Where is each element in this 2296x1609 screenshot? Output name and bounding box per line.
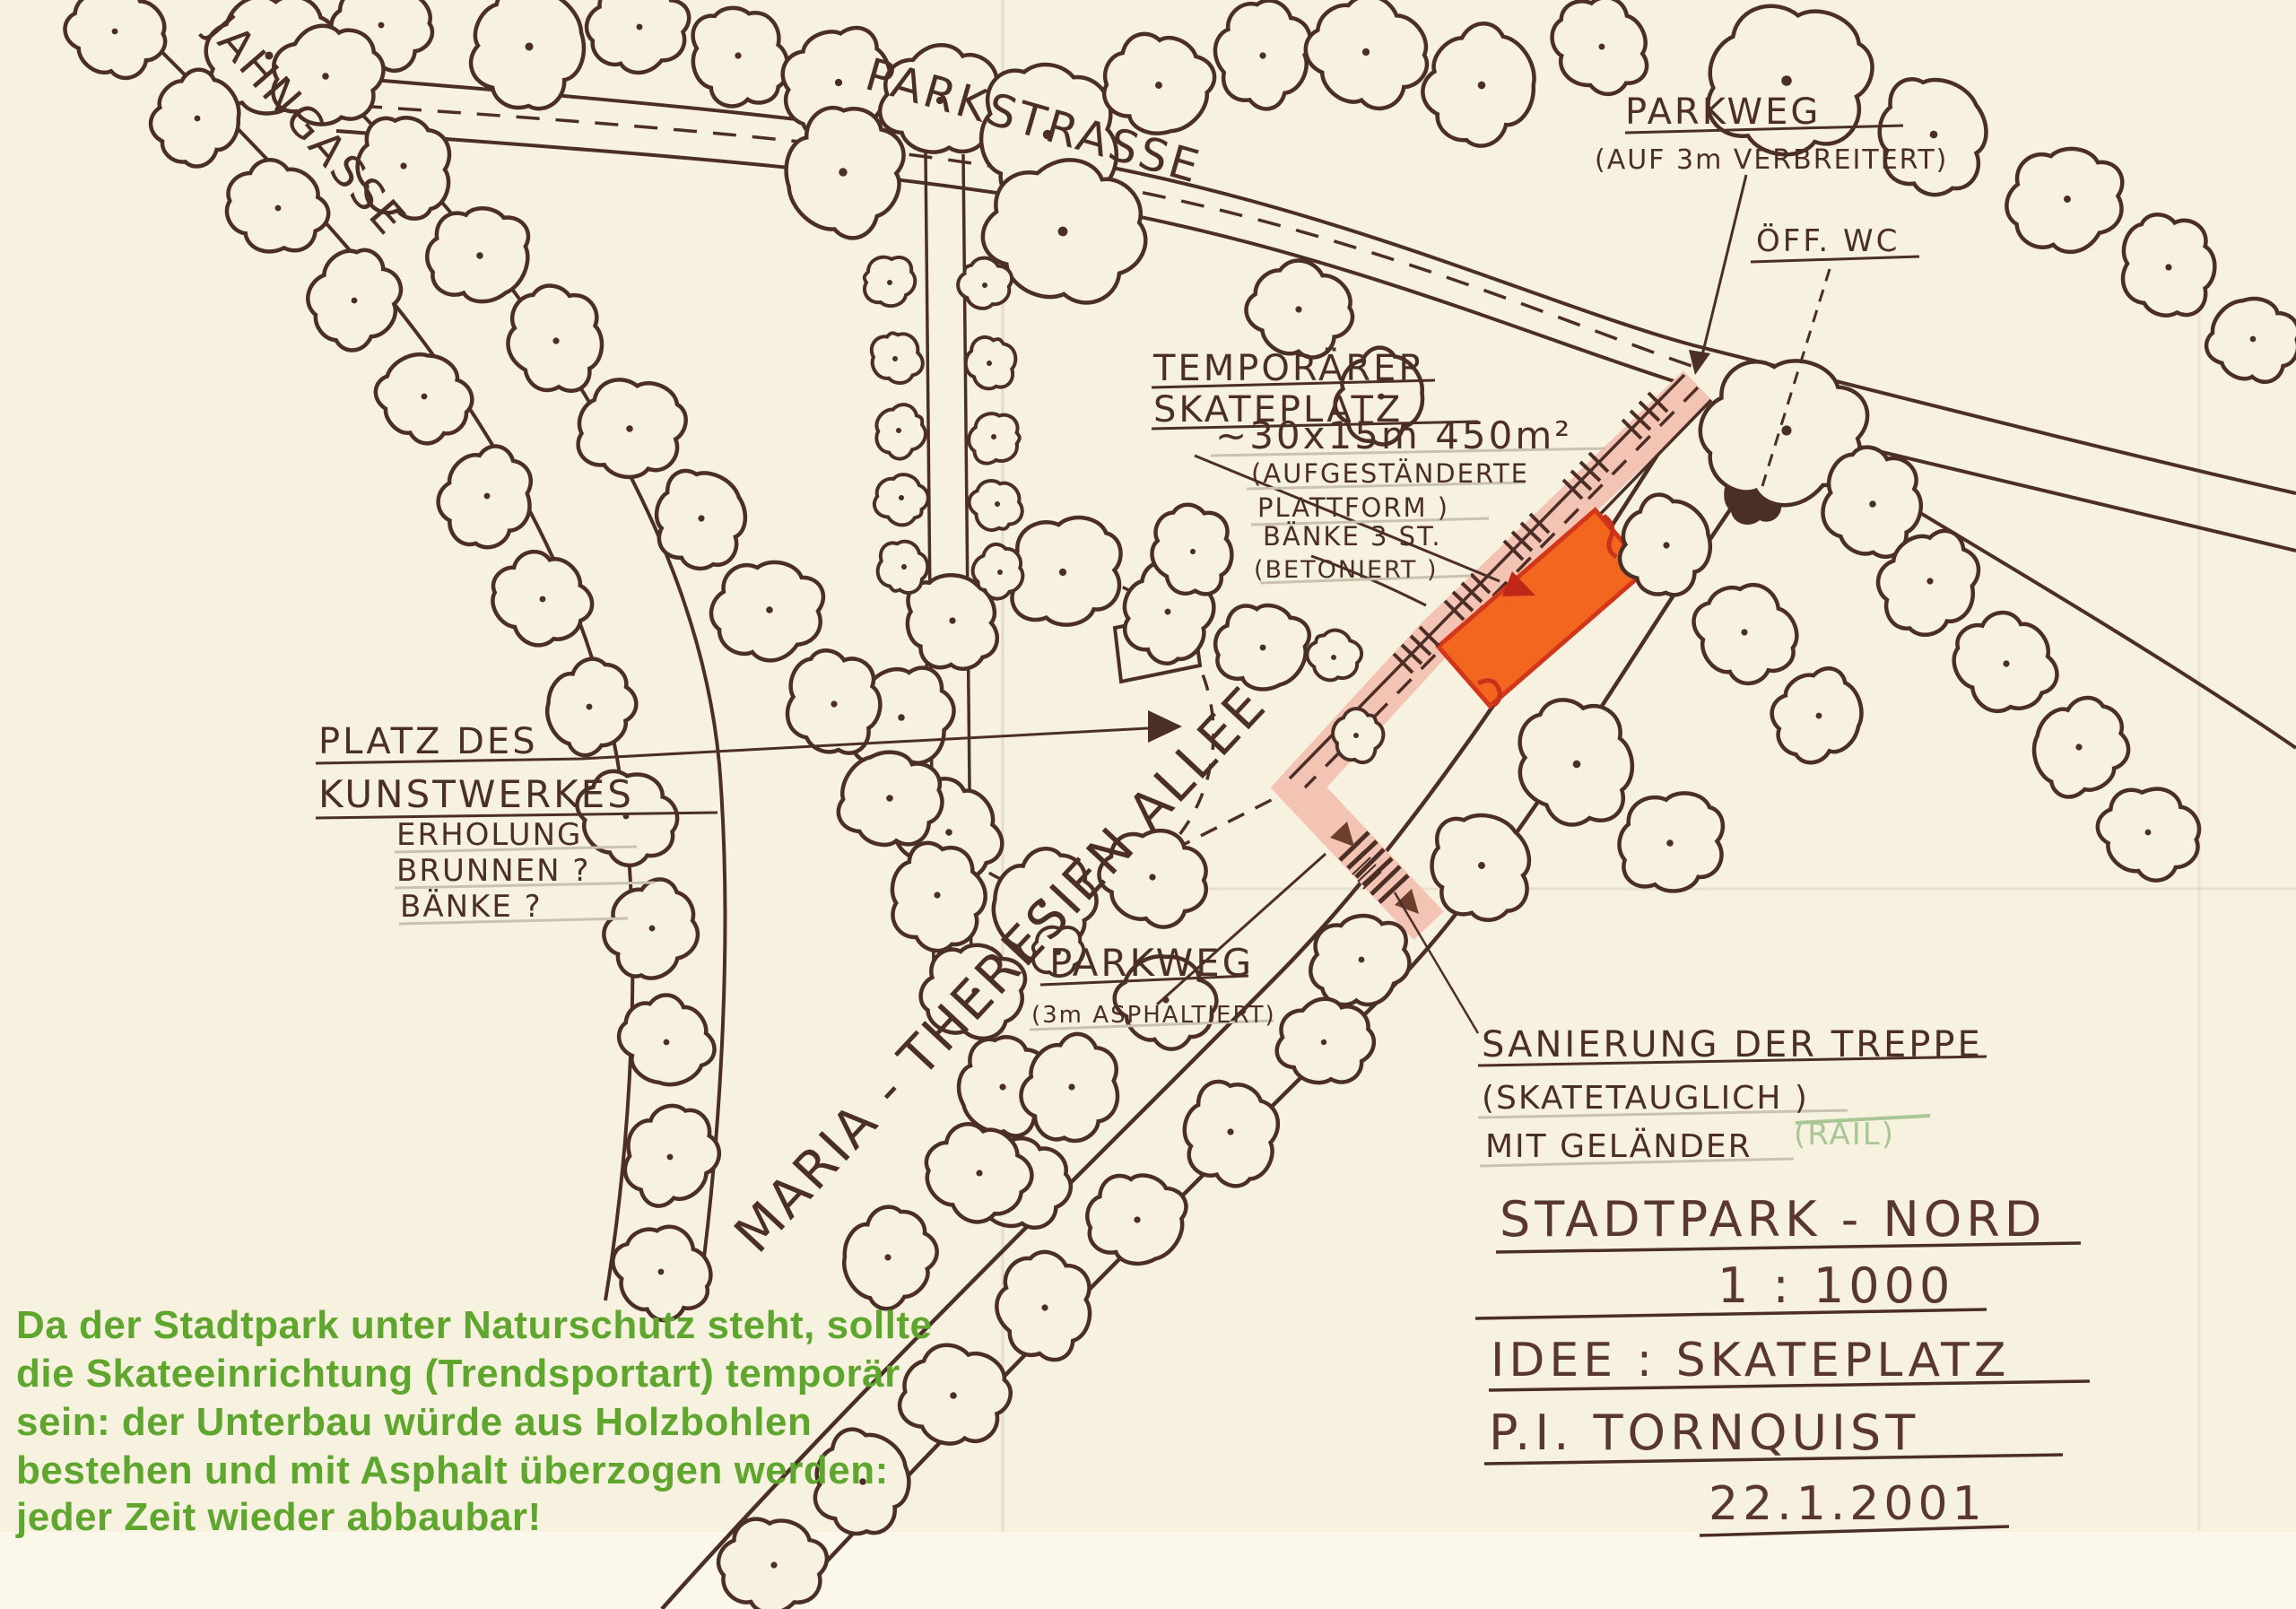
tree bbox=[363, 337, 486, 460]
bush bbox=[866, 465, 935, 532]
annotation-wc: ÖFF. WC bbox=[1756, 222, 1900, 259]
bush bbox=[961, 335, 1018, 393]
tree bbox=[2113, 210, 2222, 323]
annotation-treppe-2: (SKATETAUGLICH ) bbox=[1482, 1080, 1809, 1117]
tree bbox=[2000, 139, 2131, 260]
note-line: jeder Zeit wieder abbaubar! bbox=[15, 1495, 542, 1539]
title-author: P.I. TORNQUIST bbox=[1489, 1405, 1919, 1461]
note-line: sein: der Unterbau würde aus Holzbohlen bbox=[16, 1400, 812, 1444]
annotation-kunst-4: BRUNNEN ? bbox=[396, 853, 590, 889]
tree bbox=[1007, 517, 1120, 625]
note-line: bestehen und mit Asphalt überzogen werde… bbox=[16, 1448, 889, 1492]
scanned-site-plan: JAHNGASSE PARKSTRASSE MARIA - THERESIEN … bbox=[0, 0, 2296, 1609]
tree bbox=[1076, 1161, 1196, 1276]
bush bbox=[865, 326, 927, 391]
tree bbox=[420, 431, 552, 563]
tree bbox=[449, 0, 604, 127]
tree bbox=[1870, 71, 1995, 202]
tree bbox=[605, 979, 726, 1101]
annotation-parkweg-low-1: PARKWEG bbox=[1049, 941, 1254, 985]
tree bbox=[290, 235, 419, 364]
parkweg-top-arrowhead bbox=[1689, 350, 1710, 375]
annotation-parkweg-top-1: PARKWEG bbox=[1625, 91, 1821, 133]
tree bbox=[684, 0, 793, 113]
annotation-parkweg-low-2: (3m ASPHALTIERT) bbox=[1031, 1002, 1276, 1029]
tree bbox=[645, 463, 755, 578]
tree bbox=[1290, 0, 1446, 130]
tree bbox=[577, 0, 700, 85]
title-date: 22.1.2001 bbox=[1709, 1477, 1987, 1531]
note-line: die Skateeinrichtung (Trendsportart) tem… bbox=[16, 1352, 900, 1396]
tree bbox=[421, 200, 535, 309]
annotation-kunst-1: PLATZ DES bbox=[318, 721, 538, 762]
title-block: STADTPARK - NORD 1 : 1000 IDEE : SKATEPL… bbox=[1489, 1191, 2046, 1531]
annotation-skate-5: PLATTFORM ) bbox=[1257, 492, 1449, 523]
scan-bottom-strip bbox=[0, 1532, 2296, 1609]
tree bbox=[1170, 1071, 1291, 1196]
title-scale: 1 : 1000 bbox=[1718, 1257, 1954, 1314]
tree bbox=[1681, 567, 1811, 699]
title-idea: IDEE : SKATEPLATZ bbox=[1491, 1334, 2010, 1387]
note-block: Da der Stadtpark unter Naturschutz steht… bbox=[15, 1303, 933, 1539]
annotation-skate-1: TEMPORÄRER bbox=[1152, 346, 1426, 389]
annotation-skate-3: ~30x15m 450m² bbox=[1215, 413, 1572, 457]
tree bbox=[588, 866, 716, 993]
tree bbox=[1310, 916, 1409, 1005]
tree bbox=[52, 0, 181, 96]
annotation-treppe-3: MIT GELÄNDER bbox=[1485, 1127, 1752, 1165]
bush bbox=[962, 470, 1030, 538]
annotation-parkweg-top-2: (AUF 3m VERBREITERT) bbox=[1595, 144, 1948, 176]
annotation-kunst-5: BÄNKE ? bbox=[400, 889, 543, 925]
tree bbox=[2196, 283, 2296, 397]
annotation-baenke-2: (BETONIERT ) bbox=[1254, 556, 1439, 584]
note-line: Da der Stadtpark unter Naturschutz steht… bbox=[16, 1303, 933, 1347]
bush bbox=[965, 409, 1023, 465]
tree bbox=[1205, 591, 1318, 700]
title-name: STADTPARK - NORD bbox=[1500, 1191, 2046, 1248]
annotation-treppe-rail: (RAIL) bbox=[1794, 1117, 1895, 1152]
tree bbox=[1757, 657, 1877, 774]
tree bbox=[530, 645, 653, 768]
bush bbox=[865, 396, 935, 466]
annotation-treppe-1: SANIERUNG DER TREPPE bbox=[1482, 1024, 1983, 1065]
annotation-skate-4: (AUFGESTÄNDERTE bbox=[1251, 458, 1529, 489]
tree bbox=[825, 1192, 955, 1322]
tree bbox=[1401, 8, 1557, 164]
tree bbox=[1620, 793, 1723, 891]
bush bbox=[865, 257, 915, 306]
parkweg-top-leader bbox=[1701, 175, 1746, 359]
annotation-kunst-2: KUNSTWERKES bbox=[318, 772, 634, 816]
annotation-baenke-1: BÄNKE 3 ST. bbox=[1263, 521, 1442, 552]
tree bbox=[1432, 815, 1529, 920]
annotation-kunst-3: ERHOLUNG bbox=[396, 817, 582, 853]
tree bbox=[569, 368, 694, 489]
